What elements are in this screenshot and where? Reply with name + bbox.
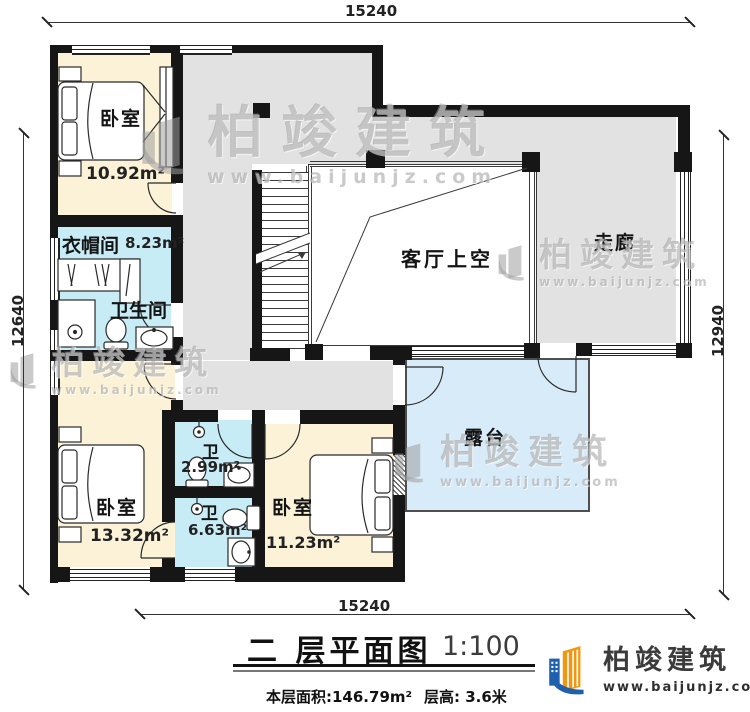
bed-bottom-left (58, 427, 144, 542)
plan-scale: 1:100 (442, 631, 520, 662)
wc-small-area: 2.99m² (181, 458, 240, 476)
bedroom-br-area: 11.23m² (266, 533, 340, 552)
floor-area-text: 本层面积:146.79m² (266, 686, 412, 707)
dim-line-top (47, 22, 690, 23)
terrace-label: 露台 (464, 423, 506, 450)
dim-line-right (723, 135, 724, 595)
bedroom-tl-area: 10.92m² (86, 164, 165, 184)
brand-name: 柏竣建筑 (603, 638, 750, 677)
living-void-label: 客厅上空 (401, 243, 493, 272)
cloakroom-label: 衣帽间 (62, 231, 119, 258)
wc-small-fixtures (186, 419, 254, 487)
dim-top-value: 15240 (345, 2, 397, 20)
brand-url: www.baijunjz.com (603, 680, 750, 695)
corridor-label: 走廊 (594, 228, 636, 255)
bedroom-br-label: 卧室 (272, 493, 314, 520)
floor-plan-page: 卧室 10.92m² 衣帽间 8.23m² 卫生间 客厅上空 走廊 卧室 13.… (0, 0, 750, 712)
dim-line-bottom (140, 614, 690, 615)
bedroom-bl-label: 卧室 (96, 493, 138, 520)
stair-break-line (256, 233, 310, 272)
floor-height-text: 层高: 3.6米 (424, 686, 507, 707)
cloakroom-area: 8.23m² (125, 234, 184, 252)
brand-logo-icon (543, 638, 595, 700)
brand-logo: 柏竣建筑 www.baijunjz.com (543, 638, 750, 700)
title-underline-2 (233, 670, 535, 672)
bedroom-tl-label: 卧室 (100, 104, 142, 131)
title-underline-1 (233, 664, 535, 667)
dim-bottom-value: 15240 (338, 597, 390, 615)
bathroom-label: 卫生间 (110, 296, 167, 323)
bedroom-bl-area: 13.32m² (90, 526, 169, 546)
dim-left-value: 12640 (9, 291, 27, 351)
dim-line-left (23, 133, 24, 590)
wc-ensuite-area: 6.63m² (188, 521, 247, 539)
dim-right-value: 12940 (709, 301, 727, 361)
